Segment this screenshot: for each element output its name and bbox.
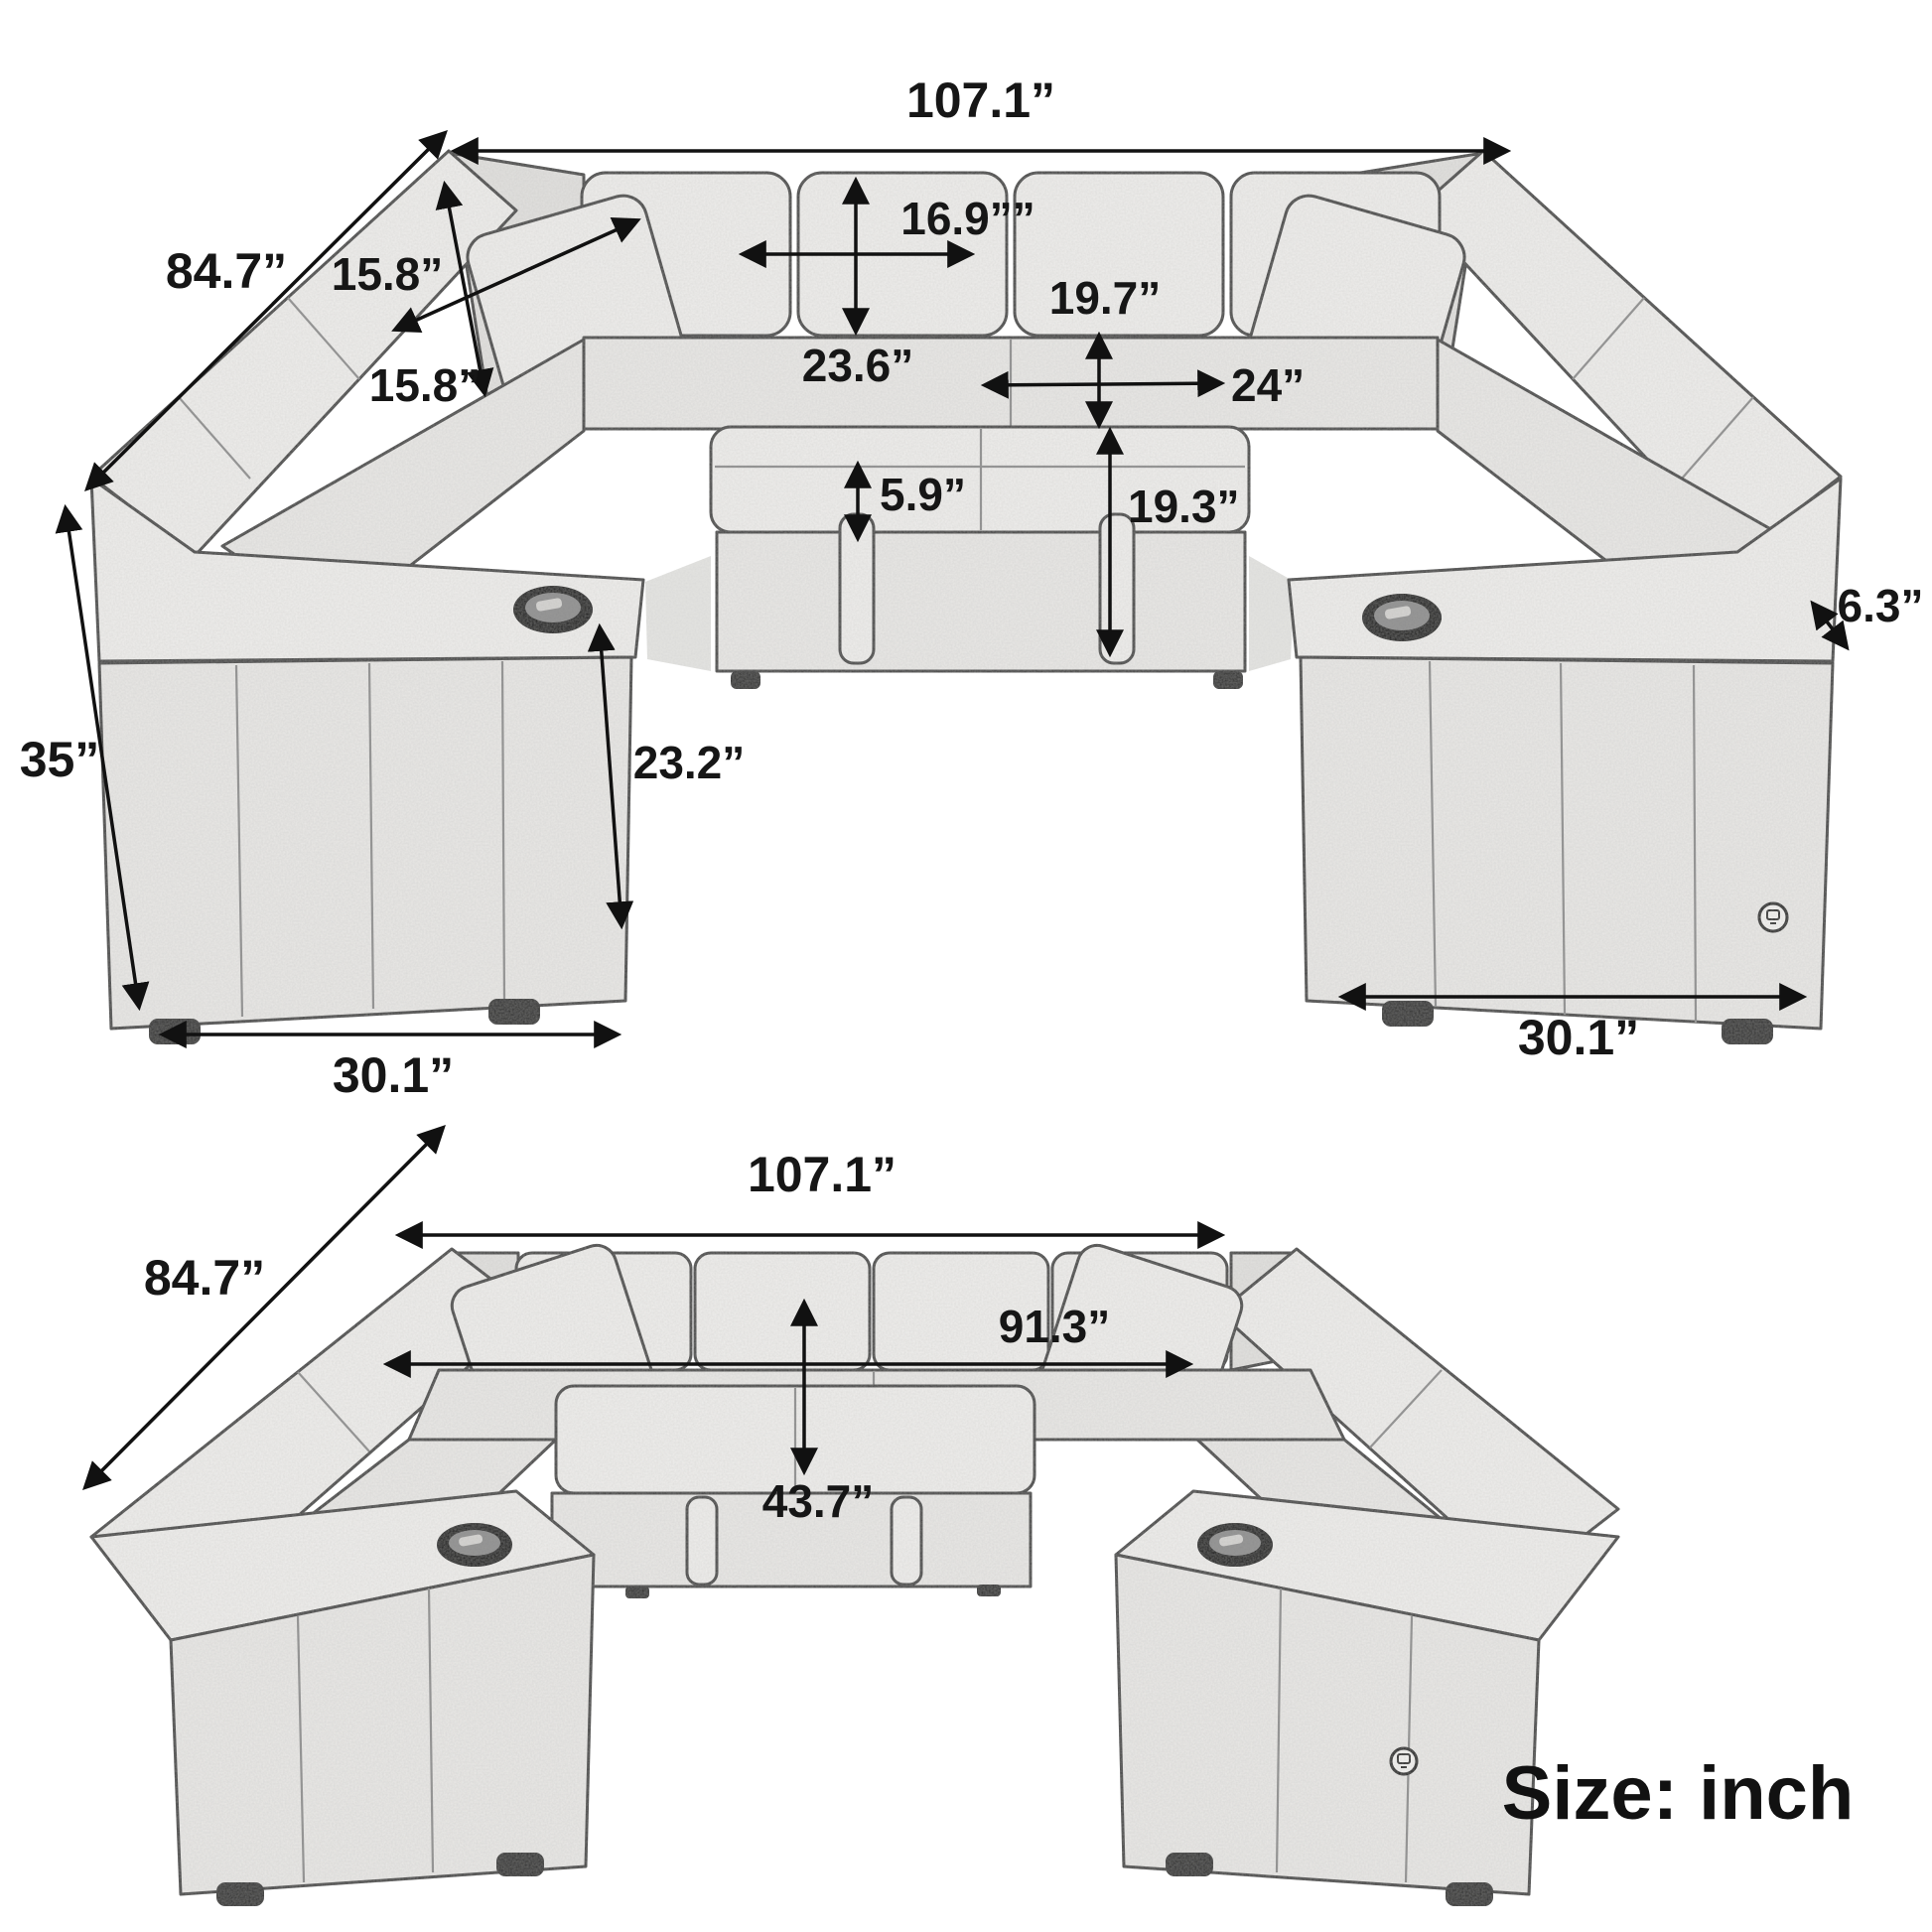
dimension-diagram-canvas: 107.1” 84.7” 35” 15.8” 15.8” 16.9”” 23.6… (0, 0, 1932, 1932)
bottom-view-sofa-illustration (91, 1240, 1618, 1906)
dim-label-arm-height: 23.2” (633, 737, 746, 788)
dim-label-overall-width-bottom: 107.1” (748, 1147, 897, 1202)
dim-label-inner-width: 91.3” (999, 1301, 1111, 1352)
bottom-left-arm-foot-2 (496, 1853, 544, 1876)
dim-label-backrest-height: 23.6” (802, 340, 914, 391)
bottom-right-arm-foot-2 (1166, 1853, 1213, 1876)
top-right-arm-front (1301, 657, 1833, 1029)
dim-label-seat-depth: 19.7” (1049, 272, 1162, 324)
top-left-arm-front (99, 657, 631, 1029)
dim-label-arm-width: 6.3” (1838, 580, 1924, 631)
bottom-ottoman-foot-left (625, 1587, 649, 1598)
bottom-ottoman-foot-right (977, 1585, 1001, 1596)
top-left-arm-foot-1 (149, 1019, 201, 1044)
top-right-arm-foot-2 (1722, 1019, 1773, 1044)
dim-label-diagonal-depth-top: 84.7” (166, 243, 287, 299)
bottom-back-cushion-2 (695, 1253, 870, 1370)
unit-note: Size: inch (1502, 1751, 1855, 1836)
usb-port-icon (1391, 1748, 1417, 1774)
top-ottoman-strap-right (1100, 514, 1134, 663)
top-ottoman-foot-left (731, 671, 760, 689)
bottom-right-arm-foot-1 (1446, 1882, 1493, 1906)
usb-port-icon (1759, 903, 1787, 931)
top-ottoman-shadow-right (1249, 556, 1295, 671)
top-ottoman-shadow-left (645, 556, 711, 671)
dim-label-seat-height: 19.3” (1128, 481, 1240, 532)
bottom-left-arm-foot-1 (216, 1882, 264, 1906)
dim-label-diagonal-depth-bottom: 84.7” (144, 1250, 265, 1306)
dim-label-arm-depth-right: 30.1” (1518, 1010, 1639, 1065)
dim-label-inner-depth: 43.7” (762, 1475, 875, 1527)
bottom-ottoman-strap-left (687, 1497, 717, 1585)
dim-label-pillow-height: 15.8” (369, 359, 482, 411)
dim-label-overall-width-top: 107.1” (906, 72, 1055, 128)
dim-arrow-seat-width (985, 383, 1221, 385)
dim-label-seat-width: 24” (1231, 359, 1305, 411)
top-right-arm-foot-1 (1382, 1001, 1434, 1027)
cupholder-icon (513, 586, 593, 633)
dim-label-back-cushion-width: 16.9”” (900, 193, 1035, 244)
top-left-arm-foot-2 (488, 999, 540, 1025)
cupholder-icon (437, 1523, 512, 1567)
top-ottoman-foot-right (1213, 671, 1243, 689)
cupholder-icon (1362, 594, 1442, 641)
dim-label-arm-depth-left: 30.1” (333, 1047, 454, 1103)
cupholder-icon (1197, 1523, 1273, 1567)
bottom-ottoman-strap-right (892, 1497, 921, 1585)
dim-label-pillow-width: 15.8” (332, 248, 444, 300)
dim-label-overall-height: 35” (20, 732, 100, 787)
dim-label-cushion-thickness: 5.9” (880, 469, 966, 520)
top-ottoman-base (717, 532, 1245, 671)
